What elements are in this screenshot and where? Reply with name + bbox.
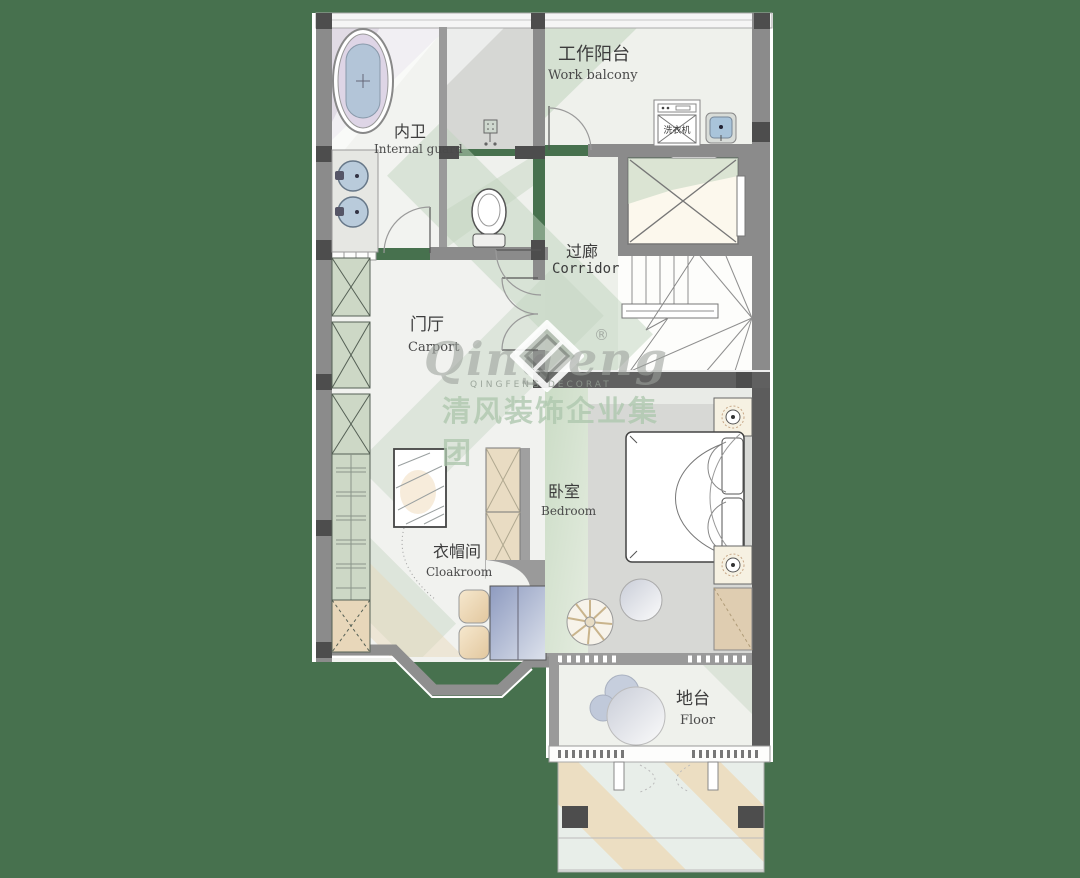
floor-plan-drawing bbox=[0, 0, 1080, 878]
nightstand-lamp-top bbox=[714, 398, 752, 436]
nightstand-lamp-bottom bbox=[714, 546, 752, 584]
toilet-icon bbox=[472, 189, 506, 247]
rattan-stool-icon bbox=[567, 599, 613, 645]
pouf-icon bbox=[620, 579, 662, 621]
vanity-sinks-icon bbox=[332, 150, 378, 252]
bathtub-icon bbox=[333, 29, 393, 133]
bedroom-cabinet-icon bbox=[714, 588, 752, 650]
floor-plan-canvas: 工作阳台 Work balcony 内卫 Internal guard 过廊 C… bbox=[0, 0, 1080, 878]
elevator-shaft bbox=[618, 146, 752, 256]
balcony-sink-icon bbox=[706, 113, 736, 143]
dresser-icon bbox=[490, 586, 546, 660]
bed-icon bbox=[626, 432, 744, 562]
washing-machine-icon bbox=[654, 100, 700, 146]
